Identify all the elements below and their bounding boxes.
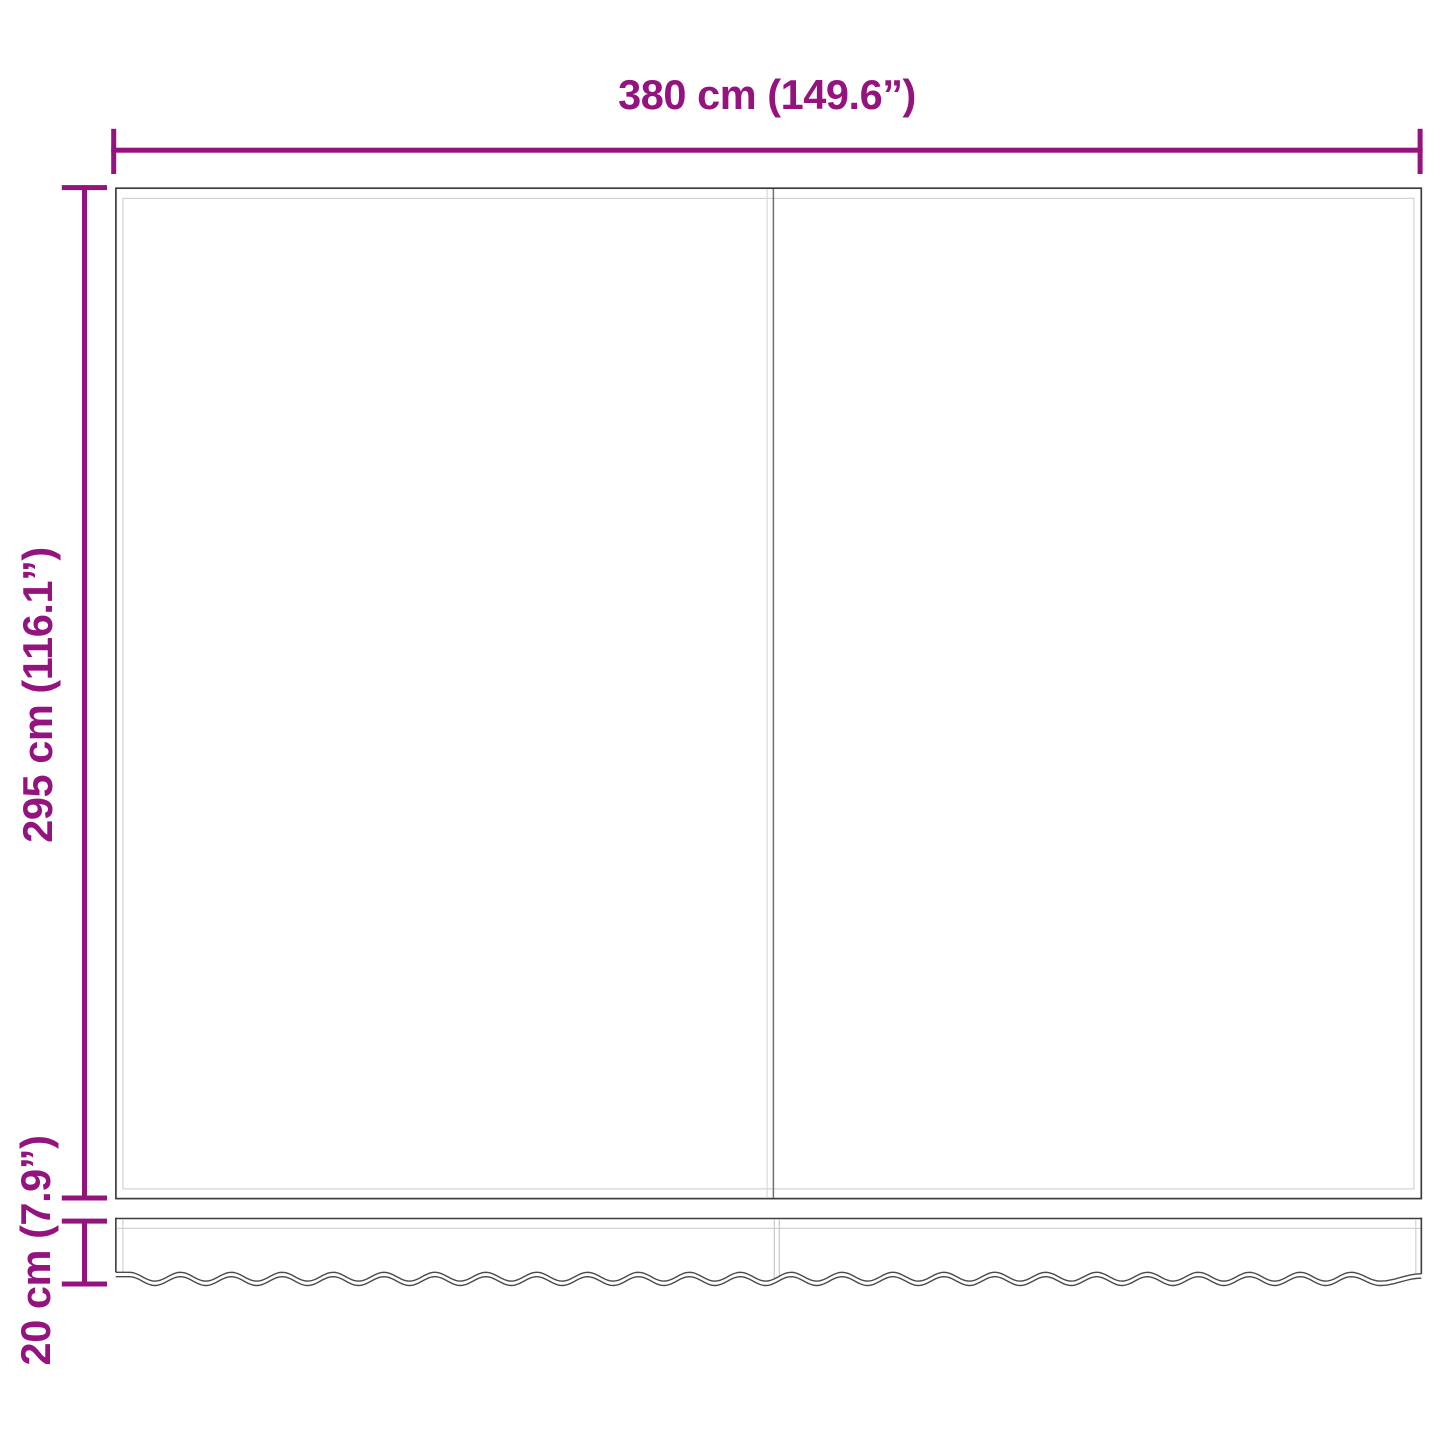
svg-text:20 cm (7.9”): 20 cm (7.9”) xyxy=(12,1136,59,1366)
svg-text:295 cm (116.1”): 295 cm (116.1”) xyxy=(14,547,61,842)
svg-text:380 cm (149.6”): 380 cm (149.6”) xyxy=(618,71,916,118)
